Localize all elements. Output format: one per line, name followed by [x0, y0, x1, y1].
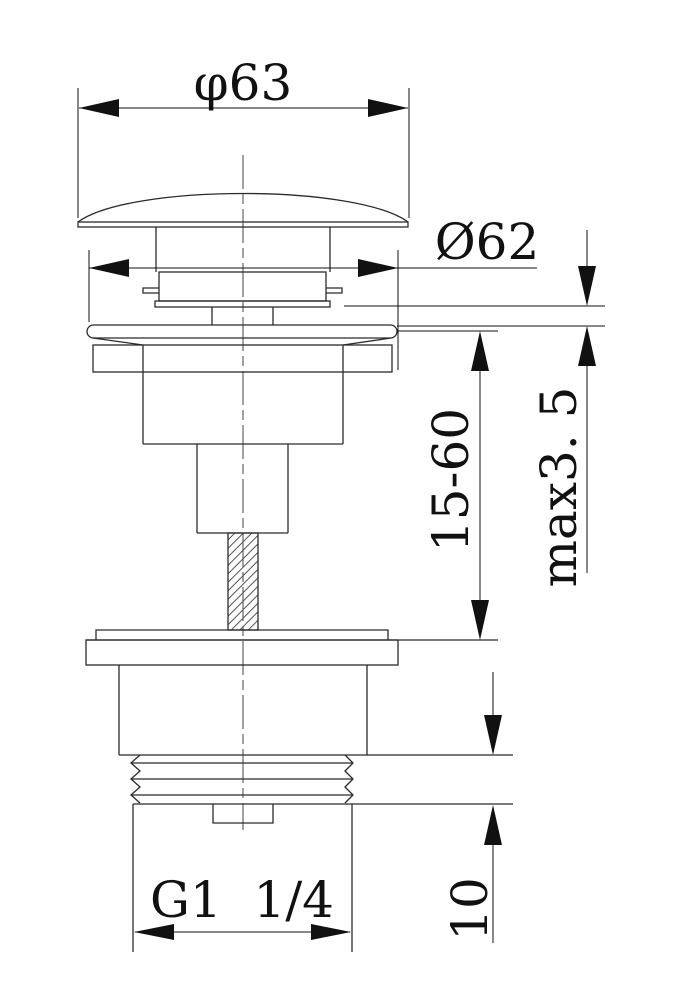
- thread-spec-label: G1 1/4: [150, 871, 334, 929]
- lower-flange: [86, 640, 398, 665]
- range1560-arrow-bottom: [471, 600, 489, 640]
- washer-cone-seat: [93, 338, 391, 345]
- thread-crest-lines: [132, 763, 352, 795]
- drain-waste-technical-drawing: φ63 Ø62 15-60 max3. 5 10 G1 1/4: [0, 0, 675, 1000]
- phi63-arrow-left: [79, 99, 119, 117]
- cap-diameter-label: φ63: [194, 54, 293, 112]
- thread-length-label: 10: [441, 877, 499, 941]
- max35-arrow-bottom: [578, 326, 596, 366]
- len10-arrow-bottom: [484, 805, 502, 845]
- max35-arrow-top: [578, 266, 596, 306]
- len10-arrow-top: [484, 715, 502, 755]
- dia62-arrow-left: [89, 259, 129, 277]
- threaded-rod-hatched: [228, 533, 258, 630]
- range1560-arrow-top: [471, 331, 489, 371]
- max35-extension-lines: [344, 306, 605, 326]
- lower-thin-plate: [96, 630, 388, 640]
- seal-washer: [87, 325, 397, 338]
- phi63-arrow-right: [368, 99, 408, 117]
- dia62-arrow-right: [358, 259, 398, 277]
- height-range-label: 15-60: [422, 408, 480, 552]
- technical-drawing-canvas: φ63 Ø62 15-60 max3. 5 10 G1 1/4: [0, 0, 675, 1000]
- body-diameter-label: Ø62: [435, 213, 540, 271]
- max-thickness-label: max3. 5: [530, 387, 588, 588]
